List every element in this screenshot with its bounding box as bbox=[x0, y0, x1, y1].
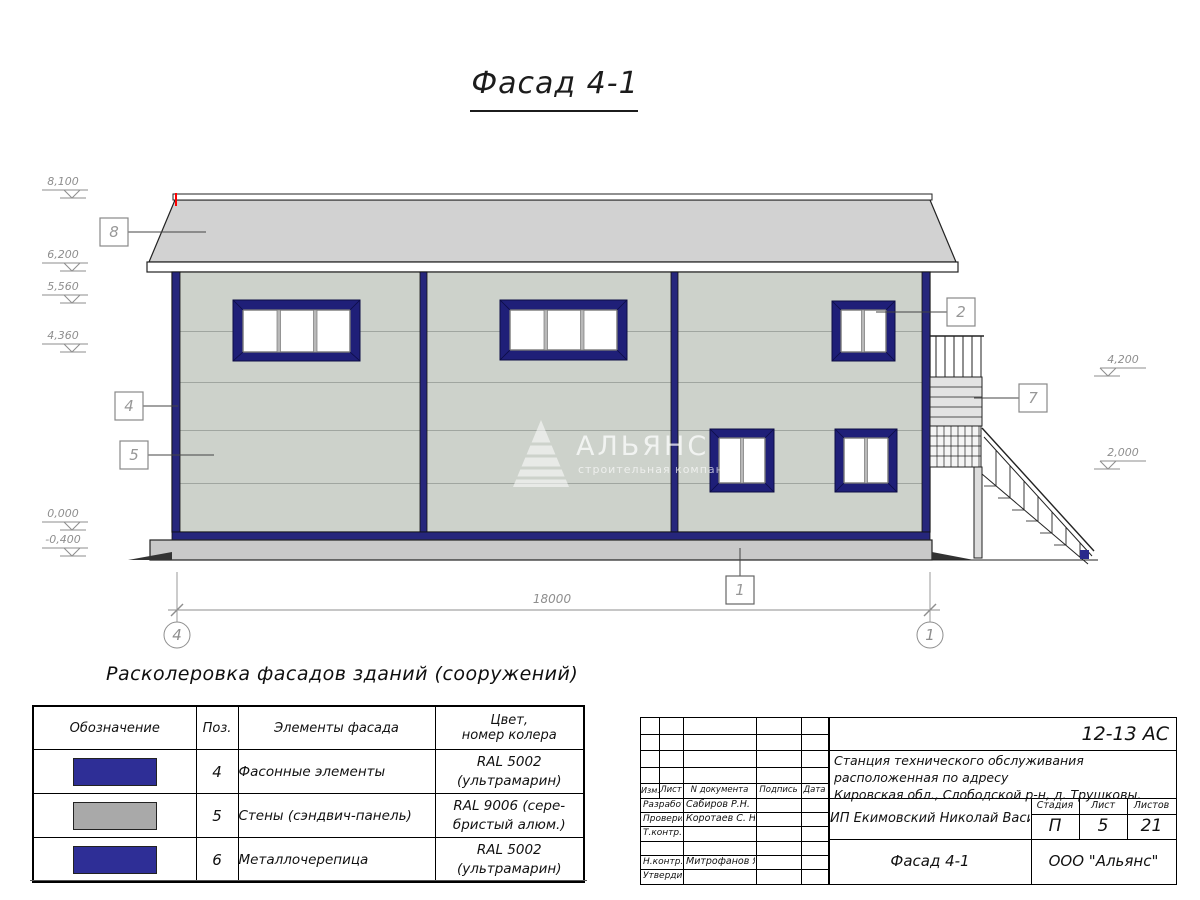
sign-name: Митрофанов Я. А. bbox=[686, 855, 755, 869]
sheets-header: Листов bbox=[1127, 798, 1176, 814]
legend-pos: 6 bbox=[196, 838, 238, 883]
landing-post bbox=[974, 467, 982, 558]
legend-pos: 4 bbox=[196, 750, 238, 794]
project-address: Станция технического обслуживания распол… bbox=[834, 752, 1174, 803]
divider-line bbox=[641, 750, 1176, 751]
elevation-value: 4,200 bbox=[1100, 353, 1146, 366]
rev-header: Лист bbox=[659, 783, 683, 798]
legend-row: 5 Стены (сэндвич-панель) RAL 9006 (сере-… bbox=[33, 794, 584, 838]
client-name: ИП Екимовский Николай Васильевич bbox=[830, 798, 1030, 839]
sign-label: Утвердил bbox=[643, 869, 682, 884]
divider-line bbox=[683, 718, 684, 884]
rev-header: Дата bbox=[801, 783, 828, 798]
dimension-value: 18000 bbox=[510, 592, 594, 606]
legend-element: Металлочерепица bbox=[238, 838, 435, 883]
legend-row: 6 Металлочерепица RAL 5002 (ультрамарин) bbox=[33, 838, 584, 883]
rev-header: N документа bbox=[683, 783, 756, 798]
corner-trim-left bbox=[172, 272, 180, 532]
divider-line bbox=[801, 718, 802, 884]
legend-heading: Расколеровка фасадов зданий (сооружений) bbox=[106, 663, 578, 685]
roof-group bbox=[147, 193, 958, 272]
corner-trim-right bbox=[922, 272, 930, 532]
window-3 bbox=[832, 301, 895, 361]
drawing-sheet: Фасад 4-1 bbox=[0, 0, 1200, 900]
sign-label: Т.контр. bbox=[643, 826, 682, 841]
callout-number: 7 bbox=[1019, 384, 1047, 412]
watermark-tagline: строительная компания bbox=[578, 463, 740, 476]
legend-color: RAL 5002 (ультрамарин) bbox=[435, 838, 584, 883]
panel-divider bbox=[671, 272, 678, 532]
titleblock: Изм. Лист N документа Подпись Дата Разра… bbox=[640, 717, 1177, 885]
legend-color: RAL 9006 (сере- бристый алюм.) bbox=[435, 794, 584, 838]
elevation-marks-left bbox=[42, 190, 88, 556]
rev-header: Изм. bbox=[641, 783, 659, 798]
stage-header: Стадия bbox=[1031, 798, 1079, 814]
stage-value: П bbox=[1031, 814, 1079, 839]
divider-line bbox=[641, 734, 828, 735]
color-swatch bbox=[73, 758, 157, 786]
legend-col-header: Цвет, номер колера bbox=[435, 706, 584, 750]
legend-row: 4 Фасонные элементы RAL 5002 (ультрамари… bbox=[33, 750, 584, 794]
divider-line bbox=[641, 841, 828, 842]
callout-number: 4 bbox=[115, 392, 143, 420]
sign-name: Сабиров Р.Н. bbox=[686, 798, 755, 812]
window-4 bbox=[710, 429, 774, 492]
legend-underline bbox=[30, 880, 587, 881]
sign-label: Н.контр. bbox=[643, 855, 682, 869]
legend-element: Фасонные элементы bbox=[238, 750, 435, 794]
legend-col-header: Обозначение bbox=[33, 706, 196, 750]
callout-number: 5 bbox=[120, 441, 148, 469]
elevation-value: 0,000 bbox=[40, 507, 86, 520]
company-name: ООО "Альянс" bbox=[1031, 839, 1176, 884]
stair-foot-blue bbox=[1080, 550, 1089, 559]
legend-color: RAL 5002 (ультрамарин) bbox=[435, 750, 584, 794]
divider-line bbox=[756, 718, 757, 884]
sign-label: Разработал bbox=[643, 798, 682, 812]
window-1 bbox=[233, 300, 360, 361]
drawing-name: Фасад 4-1 bbox=[830, 839, 1030, 884]
sign-label: Проверил bbox=[643, 812, 682, 826]
color-legend-table: Обозначение Поз. Элементы фасада Цвет, н… bbox=[32, 705, 585, 883]
legend-header-row: Обозначение Поз. Элементы фасада Цвет, н… bbox=[33, 706, 584, 750]
elevation-value: 5,560 bbox=[40, 280, 86, 293]
callout-number: 2 bbox=[947, 298, 975, 326]
legend-pos: 5 bbox=[196, 794, 238, 838]
legend-element: Стены (сэндвич-панель) bbox=[238, 794, 435, 838]
elevation-value: 6,200 bbox=[40, 248, 86, 261]
elevation-value: 2,000 bbox=[1100, 446, 1146, 459]
callout-number: 8 bbox=[100, 218, 128, 246]
elevation-value: 8,100 bbox=[40, 175, 86, 188]
color-swatch bbox=[73, 846, 157, 874]
elevation-value: -0,400 bbox=[40, 533, 86, 546]
axis-label-left: 4 bbox=[162, 620, 192, 650]
window-2 bbox=[500, 300, 627, 360]
panel-divider bbox=[420, 272, 427, 532]
facade-elevation-drawing bbox=[0, 0, 1200, 680]
legend-col-header: Элементы фасада bbox=[238, 706, 435, 750]
divider-line bbox=[641, 767, 828, 768]
ground-slope-right bbox=[932, 552, 974, 560]
watermark-name: АЛЬЯНС bbox=[576, 431, 709, 462]
plinth bbox=[150, 540, 932, 560]
legend-col-header: Поз. bbox=[196, 706, 238, 750]
rev-header: Подпись bbox=[756, 783, 801, 798]
staircase-group bbox=[930, 336, 1094, 564]
dimension-group bbox=[164, 572, 943, 648]
base-trim bbox=[172, 532, 930, 540]
elevation-value: 4,360 bbox=[40, 329, 86, 342]
axis-label-right: 1 bbox=[915, 620, 945, 650]
color-swatch bbox=[73, 802, 157, 830]
callout-number: 1 bbox=[726, 576, 754, 604]
sheet-value: 5 bbox=[1079, 814, 1127, 839]
doc-code: 12-13 АС bbox=[831, 718, 1169, 750]
sheet-header: Лист bbox=[1079, 798, 1127, 814]
sheets-value: 21 bbox=[1127, 814, 1176, 839]
window-5 bbox=[835, 429, 897, 492]
sign-name: Коротаев С. Н. bbox=[686, 812, 755, 826]
